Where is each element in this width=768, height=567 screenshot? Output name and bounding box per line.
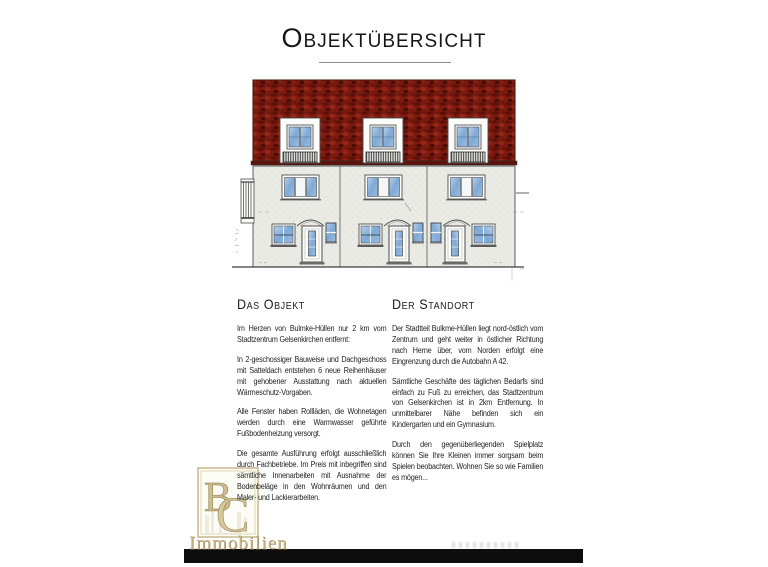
side-trellis [241,179,254,223]
object-paragraph: Die gesamte Ausführung erfolgt ausschlie… [237,449,386,504]
location-paragraph: Sämtliche Geschäfte des täglichen Bedarf… [392,377,543,432]
upper-floor-windows [280,175,487,200]
logo-wordmark: Immobilien [189,533,288,555]
elevation-svg [232,75,542,290]
objektuebersicht-document: Objektübersicht [0,0,768,567]
page-title: Objektübersicht [0,23,768,54]
object-paragraph: Alle Fenster haben Rollläden, die Wohnet… [237,407,386,440]
location-paragraph: Durch den gegenüberliegenden Spielplatz … [392,440,543,484]
object-column: Das Objekt Im Herzen von Bulmke-Hüllen n… [237,296,386,513]
location-paragraph: Der Stadtteil Bulkme-Hüllen liegt nord-ö… [392,324,543,368]
faint-footer-mark [452,542,522,548]
ground-line [232,267,524,281]
object-paragraph: In 2-geschossiger Bauweise und Dachgesch… [237,355,386,399]
object-paragraph: Im Herzen von Bulmke-Hüllen nur 2 km vom… [237,324,386,346]
title-underline [319,62,451,63]
location-heading: Der Standort [392,296,543,312]
dormers-with-railings [280,118,488,163]
location-column: Der Standort Der Stadtteil Bulkme-Hüllen… [392,296,543,493]
building-elevation-drawing [232,75,542,290]
object-heading: Das Objekt [237,296,386,312]
